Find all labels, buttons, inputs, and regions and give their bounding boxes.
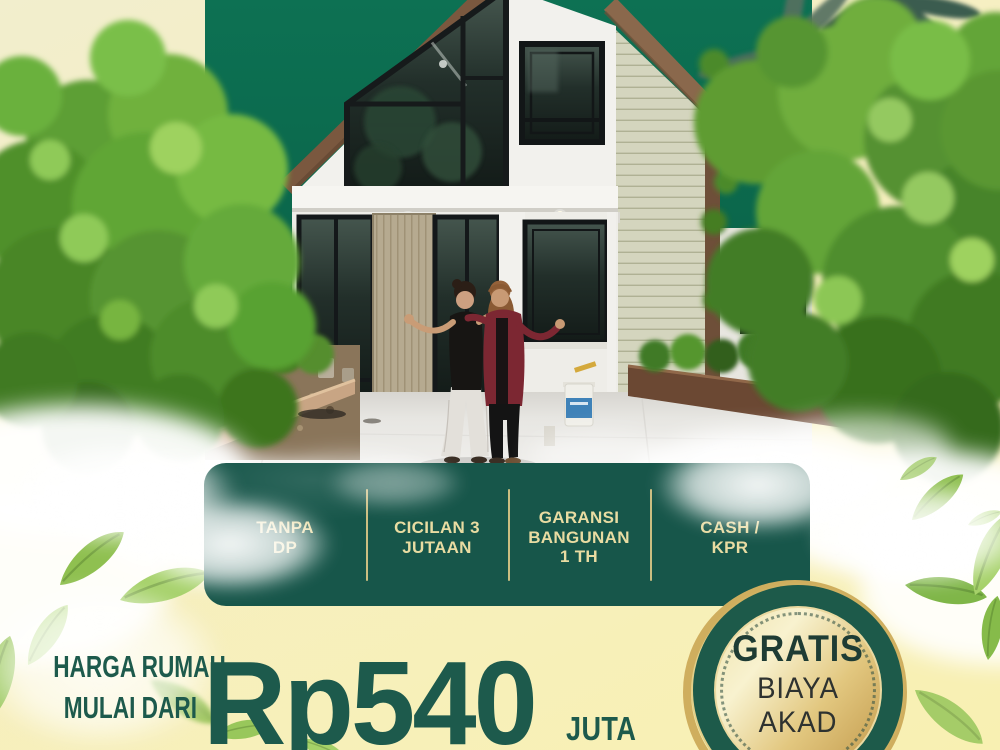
seal-subtitle-line1: BIAYA	[757, 674, 839, 704]
feature-item-cicilan: CICILAN 3 JUTAAN	[366, 512, 508, 557]
price-amount: Rp540	[203, 644, 535, 750]
feature-item-tanpa-dp: TANPA DP	[204, 512, 366, 557]
feature-line: DP	[204, 538, 366, 558]
free-akad-seal: GRATIS BIAYA AKAD	[693, 585, 903, 750]
feature-line: CASH /	[650, 518, 810, 538]
seal-subtitle-line2: AKAD	[759, 708, 838, 738]
feature-line: CICILAN 3	[366, 518, 508, 538]
price-unit: JUTA	[566, 712, 636, 745]
seal-title: GRATIS	[732, 630, 864, 667]
features-panel: TANPA DP CICILAN 3 JUTAAN GARANSI BANGUN…	[204, 463, 810, 606]
seal-text: GRATIS BIAYA AKAD	[721, 606, 876, 750]
feature-divider	[650, 489, 652, 581]
feature-divider	[508, 489, 510, 581]
feature-item-garansi: GARANSI BANGUNAN 1 TH	[508, 502, 650, 567]
feature-item-cash-kpr: CASH / KPR	[650, 512, 810, 557]
property-promo-poster: TANPA DP CICILAN 3 JUTAAN GARANSI BANGUN…	[0, 0, 1000, 750]
feature-line: JUTAAN	[366, 538, 508, 558]
feature-line: BANGUNAN	[508, 528, 650, 548]
feature-divider	[366, 489, 368, 581]
feature-line: GARANSI	[508, 508, 650, 528]
feature-line: KPR	[650, 538, 810, 558]
price-heading: HARGA RUMAH MULAI DARI	[53, 646, 197, 728]
price-heading-line2: MULAI DARI	[53, 687, 197, 728]
feature-line: 1 TH	[508, 547, 650, 567]
price-heading-line1: HARGA RUMAH	[53, 646, 197, 687]
feature-line: TANPA	[204, 518, 366, 538]
